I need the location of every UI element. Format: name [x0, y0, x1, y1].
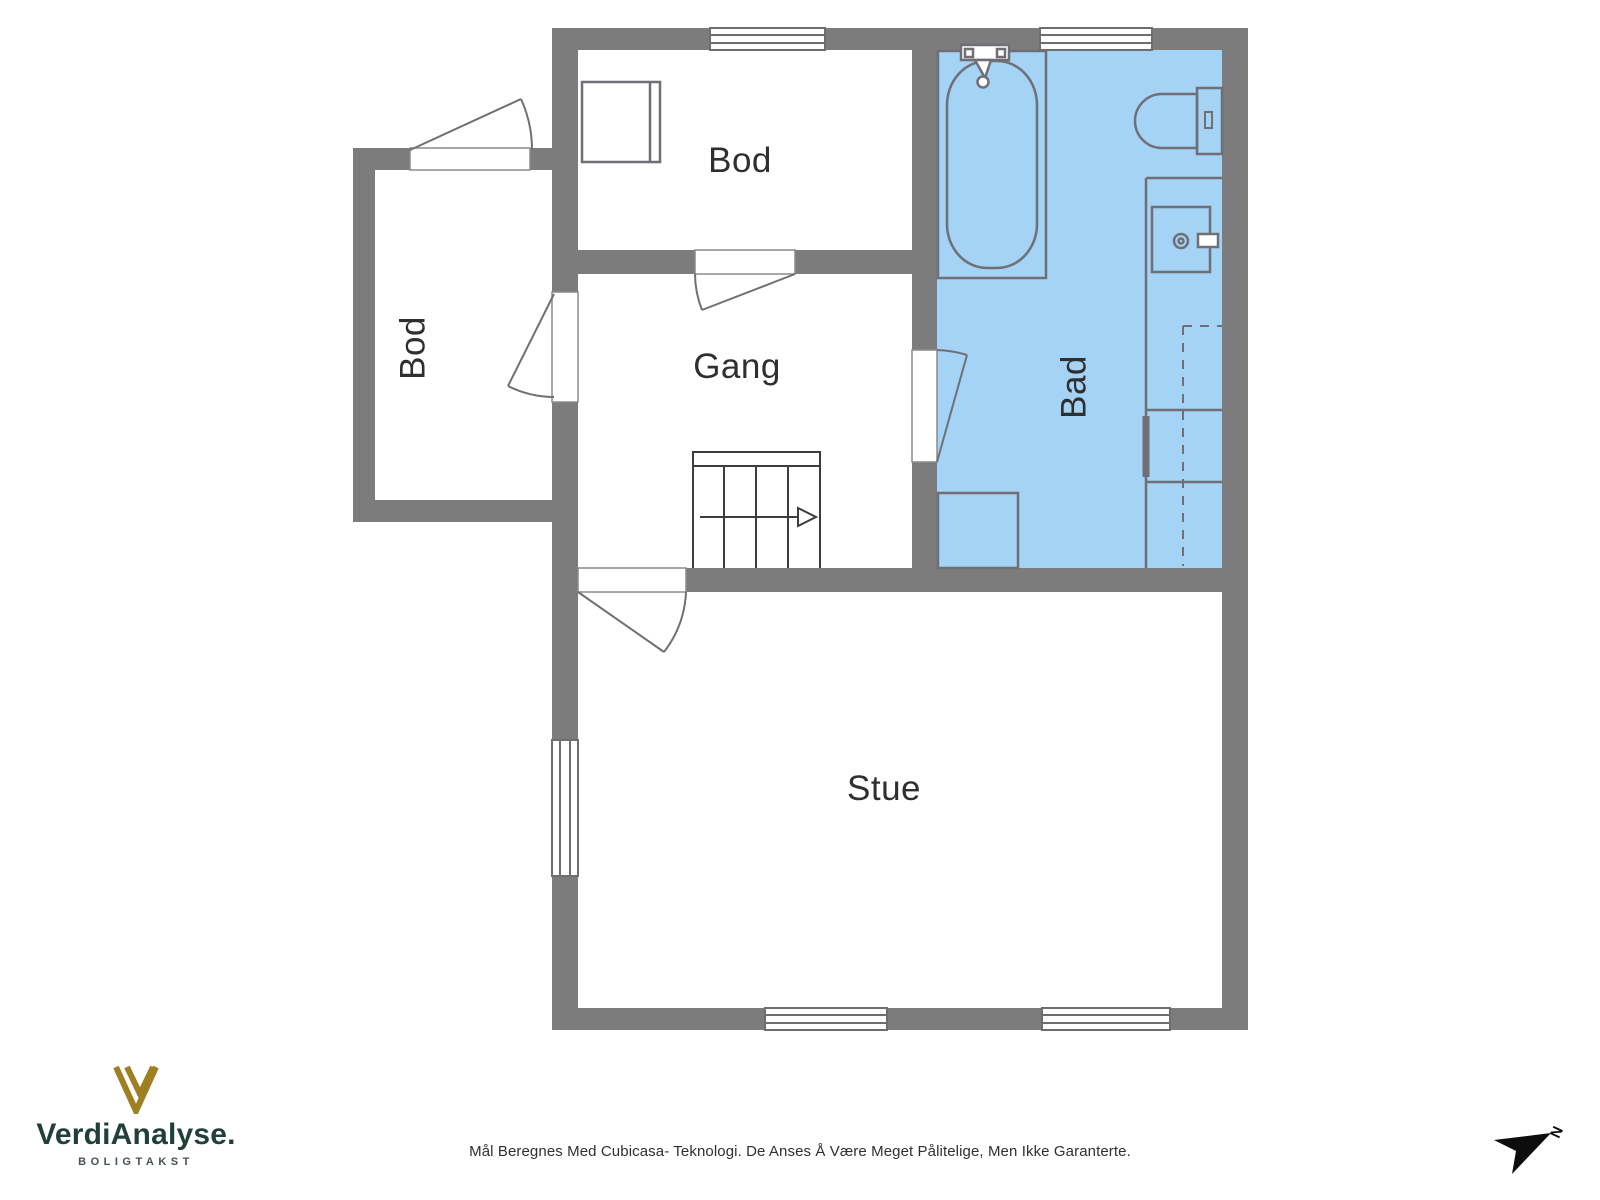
door-opening-gang-bad: [912, 350, 937, 462]
door-swing-icon: [578, 592, 686, 652]
window-icon: [552, 740, 578, 876]
window-icon: [1042, 1008, 1170, 1030]
wall-gang-bad: [912, 50, 937, 568]
north-arrow-icon: N: [1480, 1112, 1570, 1187]
door-swing-icon: [508, 294, 554, 397]
window-icon: [1040, 28, 1152, 50]
door-opening-annex-top: [410, 148, 530, 170]
bad-room-floor: [937, 50, 1222, 568]
wall-annex-bottom: [353, 500, 578, 522]
wall-annex-left: [353, 148, 375, 522]
verdianalyse-logo-icon: [111, 1062, 161, 1114]
north-arrow-shape: [1494, 1133, 1551, 1174]
door-openings: [410, 148, 937, 592]
stairs-arrowhead: [798, 508, 816, 526]
disclaimer-text: Mål Beregnes Med Cubicasa- Teknologi. De…: [0, 1143, 1600, 1160]
room-label-bod-annex: Bod: [394, 316, 433, 380]
door-opening-bod-gang: [695, 250, 795, 274]
room-label-gang: Gang: [693, 347, 781, 386]
stairs-icon: [693, 452, 820, 568]
room-label-bod-top: Bod: [708, 141, 772, 180]
door-swing-icon: [695, 274, 795, 310]
closet-icon: [582, 82, 660, 162]
room-label-bad: Bad: [1055, 355, 1094, 419]
wall-left: [552, 28, 578, 1030]
room-label-stue: Stue: [847, 769, 921, 808]
floorplan-svg: Bod Gang Bad Stue Bod: [0, 0, 1600, 1200]
wall-right: [1222, 28, 1248, 1030]
door-opening-gang-stue: [578, 568, 686, 592]
window-icon: [710, 28, 825, 50]
door-opening-annex-gang: [552, 292, 578, 402]
door-swing-icon: [410, 99, 532, 150]
window-icon: [765, 1008, 887, 1030]
compass-north-label: N: [1546, 1123, 1566, 1140]
